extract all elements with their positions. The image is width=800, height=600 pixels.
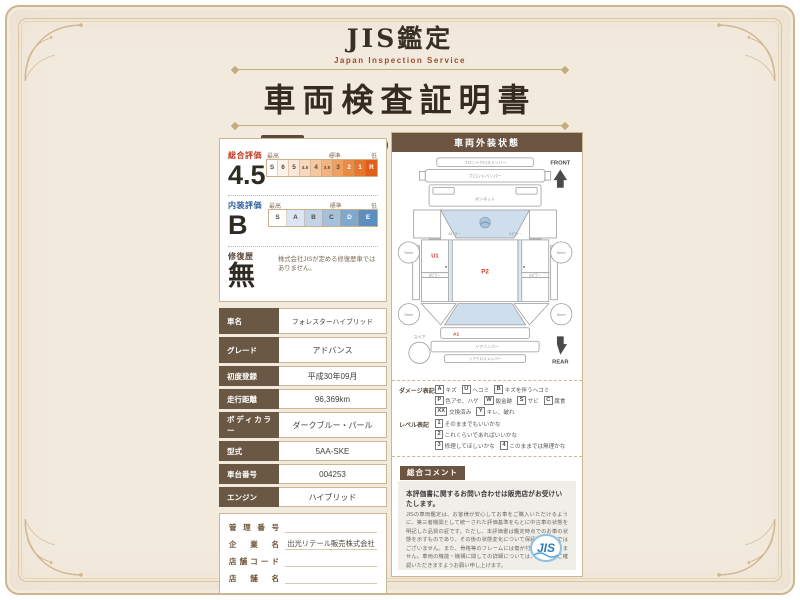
scale-cell: A [287,210,305,226]
rating-card: 総合評価 4.5 最高 標準 低 S 6 5 4.5 4 3. [219,138,387,302]
damage-legend-label: ダメージ表記 [399,385,435,416]
row-value: 出光リテール販売株式会社 [285,539,377,550]
legend-item: P色アセ、ハゲ [435,396,479,405]
legend-item: XX交換済み [435,407,471,416]
table-row: 車名フォレスターハイブリッド [219,308,387,334]
scale-cell: S [267,160,278,176]
overall-rating-scale: S 6 5 4.5 4 3.5 3 2 1 R [266,159,378,177]
row-value [285,522,377,533]
left-column: 総合評価 4.5 最高 標準 低 S 6 5 4.5 4 3. [219,138,387,595]
page-title: 車両検査証明書 [7,75,793,121]
scale-high-label: 最高 [269,201,281,210]
svg-text:5mm: 5mm [405,251,414,255]
disclaimer-heading: 本評価書に関するお問い合わせは販売店がお受けいたします。 [406,488,568,508]
interior-scale-legend: 最高 標準 低 [268,201,378,209]
legend-item: Sサビ [517,396,538,405]
table-row: エンジンハイブリッド [219,487,387,507]
row-label: エンジン [219,487,279,507]
row-value: 96,369km [279,389,387,409]
scale-cell: 3 [333,160,344,176]
svg-text:フロントクロスメンバー: フロントクロスメンバー [464,160,506,165]
table-row: 店舗コード [229,556,377,567]
row-value: 004253 [279,464,387,484]
scale-cell: S [269,210,287,226]
svg-text:U1: U1 [431,253,439,259]
scale-cell: B [305,210,323,226]
row-label: 車台番号 [219,464,279,484]
exterior-panel: 車両外装状態 フロントクロスメンバー フロントバンパー ボンネット [391,132,583,577]
row-label: 型式 [219,441,279,461]
exterior-panel-title: 車両外装状態 [392,133,582,152]
scale-cell: 2 [344,160,355,176]
row-value: フォレスターハイブリッド [279,308,387,334]
scale-cell: 4.5 [300,160,311,176]
legend-item: Yキレ、破れ [476,407,514,416]
table-row: 走行距離96,369km [219,389,387,409]
scale-low-label: 低 [371,151,377,160]
scale-cell: C [323,210,341,226]
svg-text:REAR: REAR [552,359,569,365]
scale-cell: 3.5 [322,160,333,176]
row-label: 管理番号 [229,522,285,533]
repair-history: 修復歴 無 株式会社JISが定める修復歴車ではありません。 [228,246,378,296]
svg-text:A1: A1 [453,331,459,337]
table-row: 店舗名 [229,573,377,584]
row-label: 店舗名 [229,573,285,584]
svg-text:スペア: スペア [414,333,426,339]
jis-logo-icon: JIS [524,533,568,565]
row-label: グレード [219,337,279,363]
row-label: 店舗コード [229,556,285,567]
row-value: ダークブルー・パール [279,412,387,438]
scale-cell: 5 [289,160,300,176]
svg-text:P2: P2 [481,269,489,276]
svg-text:リアバンパー: リアバンパー [475,344,498,349]
legend-item: Aキズ [435,385,457,394]
repair-history-note: 株式会社JISが定める修復歴車ではありません。 [272,251,378,290]
row-label: 初度登録 [219,366,279,386]
scale-high-label: 最高 [267,151,279,160]
row-value: アドバンス [279,337,387,363]
repair-history-value: 無 [228,262,272,290]
comment-badge: 総合コメント [400,466,465,480]
row-value [285,573,377,584]
svg-text:フロントバンパー: フロントバンパー [469,174,502,179]
ornamental-rule [235,69,565,70]
svg-text:Aピラー: Aピラー [448,231,460,236]
interior-rating-scale: S A B C D E [268,209,378,227]
row-label: 車名 [219,308,279,334]
brand-title: JIS鑑定 [7,19,793,55]
legend-item: Uヘコミ [462,385,489,394]
scale-cell: E [359,210,377,226]
corner-ornament-icon [21,517,83,579]
dealer-info-table: 管理番号 企業名出光リテール販売株式会社 店舗コード 店舗名 検査担当株式会社J… [219,513,387,595]
row-value [285,556,377,567]
table-row: ボディカラーダークブルー・パール [219,412,387,438]
svg-text:FRONT: FRONT [550,161,570,167]
row-value: 5AA-SKE [279,441,387,461]
ornamental-rule [235,125,565,126]
legend-item: Bキズを伴うヘコミ [494,385,549,394]
overall-rating-value: 4.5 [228,161,266,189]
scale-low-label: 低 [371,201,377,210]
level-legend-label: レベル表記 [399,419,435,450]
svg-text:Bピラー: Bピラー [429,273,441,278]
legend-item: C腐食 [544,396,566,405]
svg-text:ボンネット: ボンネット [475,195,495,201]
legend-item: 1そのままでもいいかな [435,419,500,428]
svg-text:5mm: 5mm [557,313,566,317]
corner-ornament-icon [717,517,779,579]
damage-legend: ダメージ表記 Aキズ Uヘコミ Bキズを伴うヘコミ P色アセ、ハゲ W鈑金跡 S… [392,380,582,456]
legend-item: 4このままでは無理かな [500,441,566,450]
overall-scale-legend: 最高 標準 低 [266,151,378,159]
table-row: 型式5AA-SKE [219,441,387,461]
certificate: JIS鑑定 Japan Inspection Service 車両検査証明書 鑑… [5,5,795,595]
svg-text:Bピラー: Bピラー [529,273,541,278]
scale-cell: 4 [311,160,322,176]
svg-text:5mm: 5mm [557,251,566,255]
scale-cell: D [341,210,359,226]
interior-rating: 内装評価 B 最高 標準 低 S A B C D E [228,195,378,245]
interior-rating-value: B [228,211,268,239]
row-label: 企業名 [229,539,285,550]
table-row: 管理番号 [229,522,377,533]
scale-cell: R [366,160,377,176]
legend-item: 2これくらいであればいいかな [435,430,517,439]
car-exterior-diagram: フロントクロスメンバー フロントバンパー ボンネット Aピラー A [392,152,582,380]
legend-item: W鈑金跡 [484,396,513,405]
row-value: ハイブリッド [279,487,387,507]
level-notation-row: レベル表記 1そのままでもいいかな 2これくらいであればいいかな 3修理してほし… [399,419,575,450]
row-label: 走行距離 [219,389,279,409]
row-value: 平成30年09月 [279,366,387,386]
svg-text:5mm: 5mm [405,313,414,317]
table-row: 企業名出光リテール販売株式会社 [229,539,377,550]
svg-text:リアクロスメンバー: リアクロスメンバー [469,356,502,361]
scale-cell: 1 [355,160,366,176]
legend-item: 3修理してほしいかな [435,441,495,450]
row-label: ボディカラー [219,412,279,438]
damage-notation-row: ダメージ表記 Aキズ Uヘコミ Bキズを伴うヘコミ P色アセ、ハゲ W鈑金跡 S… [399,385,575,416]
overall-rating: 総合評価 4.5 最高 標準 低 S 6 5 4.5 4 3. [228,146,378,195]
car-top-view-icon: フロントクロスメンバー フロントバンパー ボンネット Aピラー A [398,155,576,375]
table-row: 車台番号004253 [219,464,387,484]
table-row: 初度登録平成30年09月 [219,366,387,386]
brand-subtitle: Japan Inspection Service [7,56,793,65]
table-row: グレードアドバンス [219,337,387,363]
disclaimer-box: 本評価書に関するお問い合わせは販売店がお受けいたします。 JISの車両鑑定は、お… [398,481,576,570]
scale-mid-label: 標準 [330,201,342,210]
svg-text:Aピラー: Aピラー [509,231,521,236]
scale-mid-label: 標準 [329,151,341,160]
vehicle-info-table: 車名フォレスターハイブリッド グレードアドバンス 初度登録平成30年09月 走行… [219,308,387,507]
scale-cell: 6 [278,160,289,176]
